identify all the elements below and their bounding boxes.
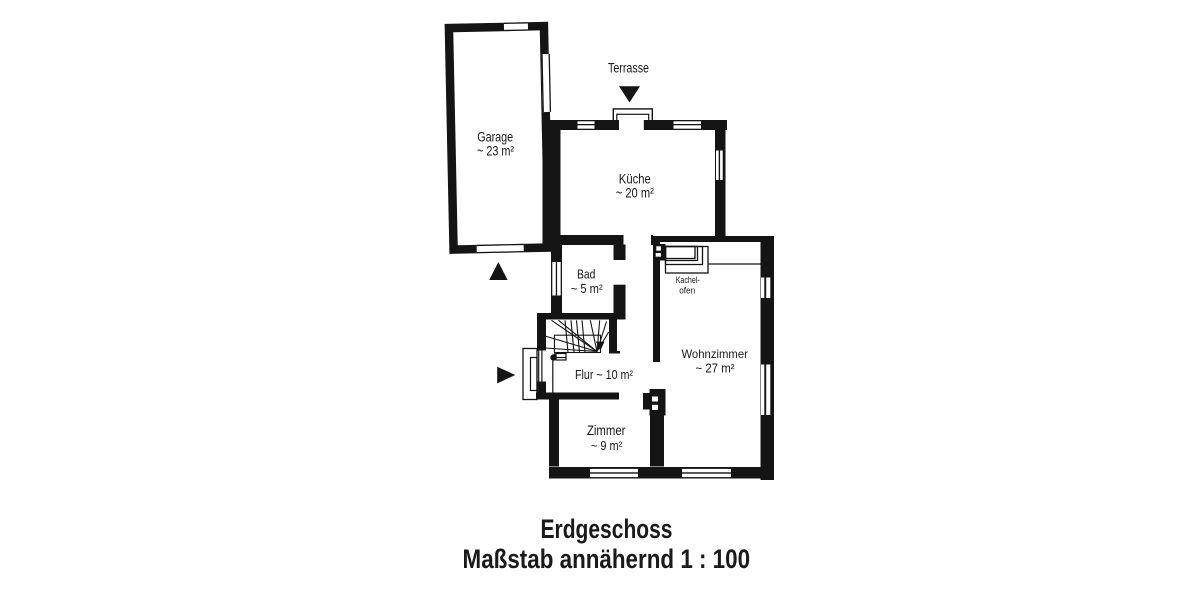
svg-text:~ 5 m²: ~ 5 m² xyxy=(571,281,604,296)
svg-text:Küche: Küche xyxy=(619,171,651,187)
svg-text:Garage: Garage xyxy=(477,130,513,145)
svg-text:Flur ~ 10 m²: Flur ~ 10 m² xyxy=(575,367,634,382)
svg-text:~ 20 m²: ~ 20 m² xyxy=(616,186,654,201)
svg-text:Terrasse: Terrasse xyxy=(608,61,649,76)
svg-text:Kachel-: Kachel- xyxy=(676,275,700,285)
svg-text:Zimmer: Zimmer xyxy=(587,423,626,438)
svg-text:~ 27 m²: ~ 27 m² xyxy=(696,362,735,376)
svg-text:Wohnzimmer: Wohnzimmer xyxy=(681,347,748,361)
svg-text:~ 9 m²: ~ 9 m² xyxy=(591,438,623,453)
svg-text:Bad: Bad xyxy=(577,267,596,282)
svg-text:Erdgeschoss: Erdgeschoss xyxy=(541,514,673,544)
svg-text:~ 23 m²: ~ 23 m² xyxy=(477,144,514,159)
svg-text:ofen: ofen xyxy=(679,285,695,295)
svg-text:Maßstab annähernd 1 : 100: Maßstab annähernd 1 : 100 xyxy=(463,544,751,574)
